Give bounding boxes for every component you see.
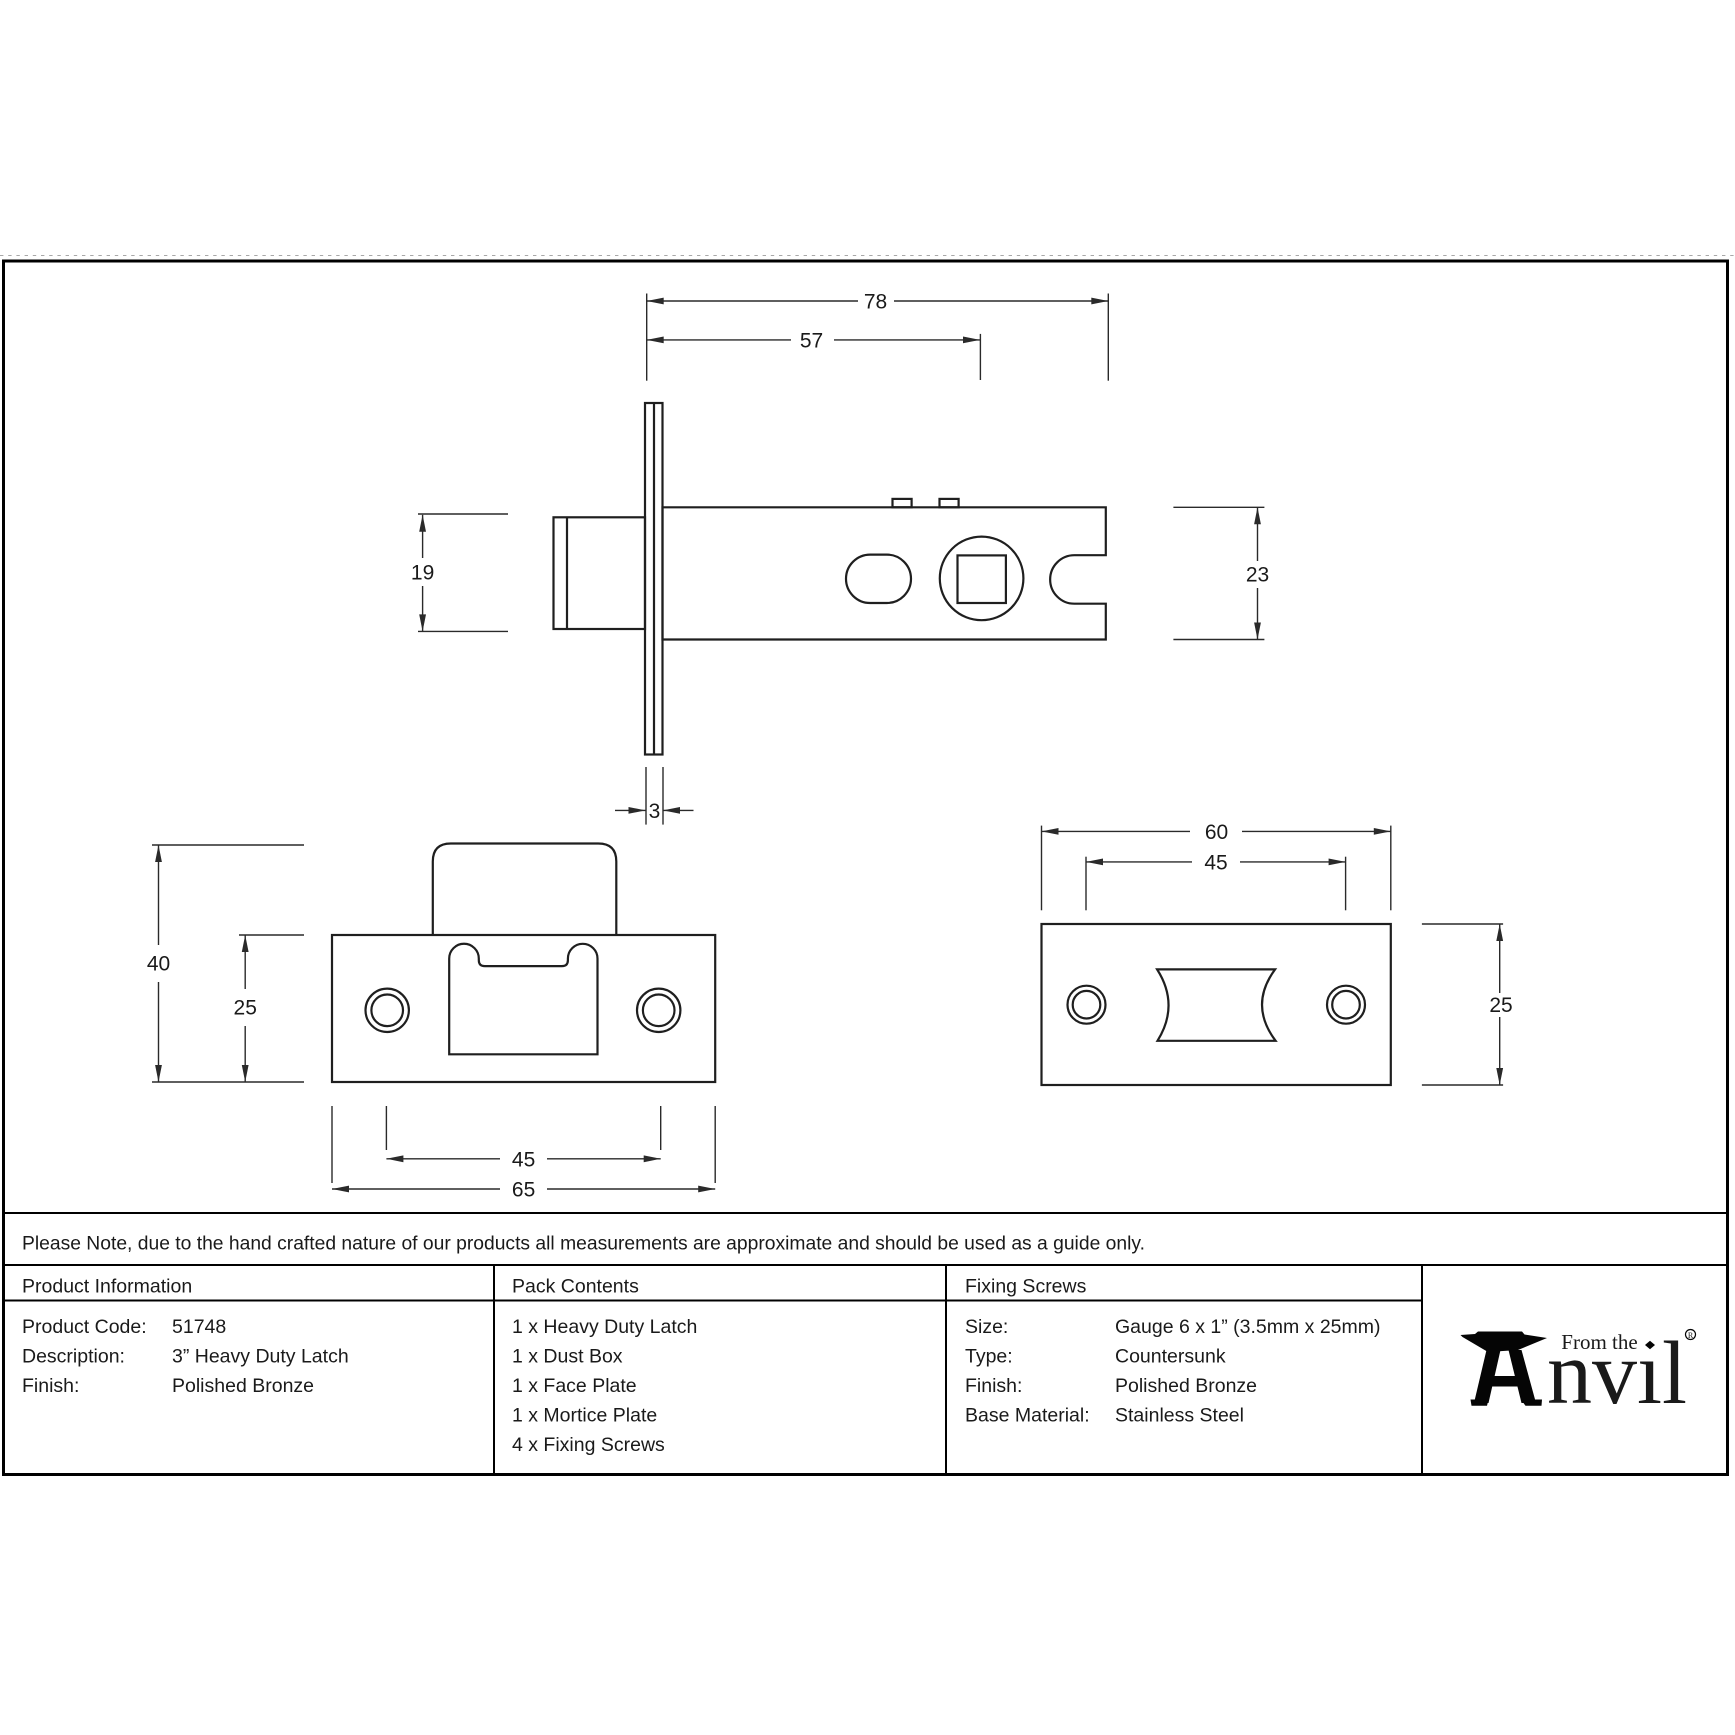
svg-text:R: R — [1688, 1331, 1694, 1340]
svg-text:Countersunk: Countersunk — [1115, 1346, 1226, 1368]
svg-text:nvıl: nvıl — [1547, 1324, 1687, 1423]
svg-text:45: 45 — [512, 1148, 535, 1171]
svg-text:Finish:: Finish: — [965, 1375, 1022, 1397]
svg-text:Please Note, due to the hand c: Please Note, due to the hand crafted nat… — [22, 1234, 1145, 1255]
svg-text:1 x Face Plate: 1 x Face Plate — [512, 1375, 637, 1397]
svg-text:Product Code:: Product Code: — [22, 1316, 147, 1338]
svg-text:1 x Heavy Duty Latch: 1 x Heavy Duty Latch — [512, 1316, 697, 1338]
svg-text:3: 3 — [649, 800, 661, 823]
svg-text:60: 60 — [1205, 821, 1228, 844]
svg-text:65: 65 — [512, 1179, 535, 1202]
svg-text:Base Material:: Base Material: — [965, 1405, 1090, 1427]
svg-text:19: 19 — [411, 562, 434, 585]
svg-text:78: 78 — [864, 291, 887, 314]
svg-text:23: 23 — [1246, 564, 1269, 587]
svg-text:Polished Bronze: Polished Bronze — [172, 1375, 314, 1397]
svg-text:4 x Fixing Screws: 4 x Fixing Screws — [512, 1434, 665, 1456]
svg-text:Polished Bronze: Polished Bronze — [1115, 1375, 1257, 1397]
svg-text:3” Heavy Duty Latch: 3” Heavy Duty Latch — [172, 1346, 349, 1368]
svg-text:Fixing Screws: Fixing Screws — [965, 1276, 1087, 1298]
svg-text:25: 25 — [1489, 994, 1512, 1017]
svg-text:Stainless Steel: Stainless Steel — [1115, 1405, 1244, 1427]
svg-text:Gauge 6 x 1” (3.5mm x 25mm): Gauge 6 x 1” (3.5mm x 25mm) — [1115, 1316, 1381, 1338]
svg-text:Pack Contents: Pack Contents — [512, 1276, 639, 1298]
svg-text:Type:: Type: — [965, 1346, 1013, 1368]
svg-text:Product Information: Product Information — [22, 1276, 192, 1298]
svg-text:57: 57 — [800, 329, 823, 352]
svg-text:51748: 51748 — [172, 1316, 226, 1338]
svg-text:Size:: Size: — [965, 1316, 1008, 1338]
svg-text:1 x Mortice Plate: 1 x Mortice Plate — [512, 1405, 657, 1427]
svg-text:25: 25 — [234, 997, 257, 1020]
svg-text:Description:: Description: — [22, 1346, 125, 1368]
svg-text:45: 45 — [1204, 851, 1227, 874]
svg-text:40: 40 — [147, 953, 170, 976]
svg-text:1 x Dust Box: 1 x Dust Box — [512, 1346, 623, 1368]
svg-text:Finish:: Finish: — [22, 1375, 79, 1397]
